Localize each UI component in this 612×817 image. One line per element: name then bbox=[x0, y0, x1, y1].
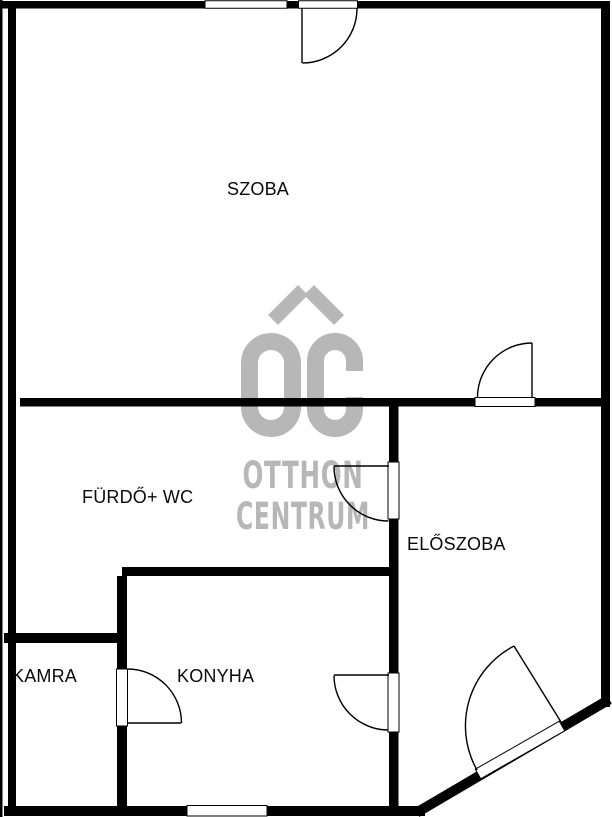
door-opening-konyha bbox=[388, 673, 399, 732]
room-label-szoba: SZOBA bbox=[227, 179, 289, 199]
door-opening-szoba-top bbox=[299, 1, 358, 9]
door-opening-kamra bbox=[117, 669, 128, 726]
wall-right bbox=[601, 1, 610, 707]
floorplan-drawing: OTTHON CENTRUM bbox=[0, 0, 612, 817]
door-opening-furdo bbox=[388, 462, 399, 519]
watermark-text-otthon: OTTHON bbox=[243, 454, 364, 497]
watermark-text-centrum: CENTRUM bbox=[236, 495, 370, 538]
room-label-furdo-wc: FÜRDŐ+ WC bbox=[82, 486, 193, 507]
watermark-letter-c-gap bbox=[336, 371, 368, 397]
wall-left-edge-line bbox=[0, 0, 3, 817]
wall-left bbox=[8, 1, 16, 816]
window-top bbox=[205, 1, 287, 9]
window-bottom bbox=[187, 806, 267, 817]
room-label-konyha: KONYHA bbox=[177, 666, 254, 686]
wall-eloszoba-left bbox=[389, 398, 399, 810]
wall-kamra-top bbox=[4, 633, 117, 643]
floorplan-background bbox=[0, 0, 612, 817]
floorplan-canvas: OTTHON CENTRUM bbox=[0, 0, 612, 817]
room-label-kamra: KAMRA bbox=[12, 666, 77, 686]
wall-furdo-konyha bbox=[122, 567, 399, 576]
room-label-eloszoba: ELŐSZOBA bbox=[407, 533, 506, 554]
door-opening-szoba-eloszoba bbox=[475, 398, 535, 407]
